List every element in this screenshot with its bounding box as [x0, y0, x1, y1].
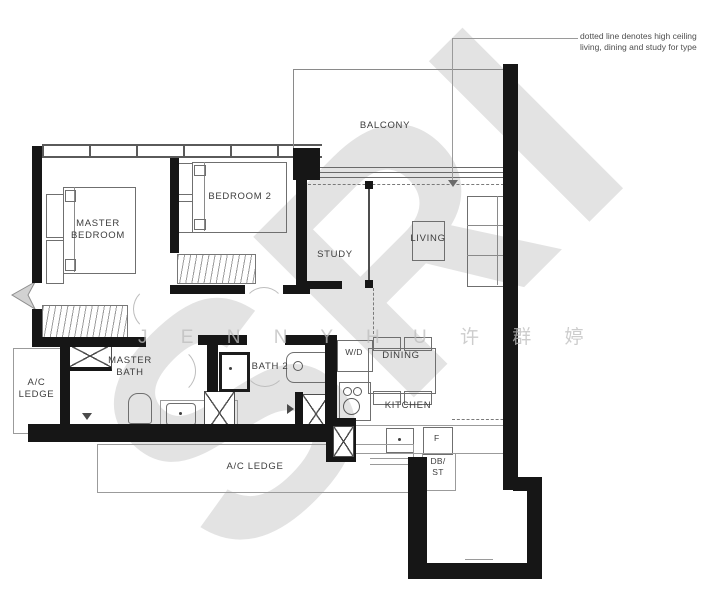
- sofa: [467, 196, 506, 287]
- label-fridge: F: [423, 433, 451, 444]
- sink-drain: [229, 367, 232, 370]
- tub-drain: [293, 361, 303, 371]
- room-label-kitchen: KITCHEN: [382, 400, 434, 412]
- room-label-master-bath: MASTER BATH: [100, 355, 160, 380]
- wall-segment: [325, 335, 337, 430]
- wall-segment: [365, 181, 373, 189]
- wall-segment: [365, 280, 373, 288]
- wardrobe: [177, 254, 256, 284]
- wall-segment: [296, 178, 307, 288]
- room-label-bedroom2: BEDROOM 2: [200, 191, 280, 203]
- sink-drain: [398, 438, 401, 441]
- wall-segment: [32, 146, 42, 283]
- room-label-study: STUDY: [312, 249, 358, 261]
- sofa-cushion-line: [467, 225, 504, 226]
- high-ceiling-dotted-line: [308, 184, 504, 185]
- balcony-sliding-door: [310, 167, 503, 178]
- label-db-st: DB/ ST: [424, 456, 452, 478]
- leader-line-horizontal: [452, 38, 578, 39]
- room-label-master-bedroom: MASTER BEDROOM: [58, 218, 138, 243]
- sofa-cushion-line: [467, 255, 504, 256]
- floor-plan: SRI J E N N Y H U 许 群 婷 dotted line deno…: [0, 0, 705, 600]
- leader-arrow-icon: [448, 180, 458, 187]
- bedroom-window-band: [42, 144, 322, 158]
- wardrobe: [42, 305, 128, 339]
- wall-segment: [28, 424, 354, 442]
- label-ac-ledge-bottom: A/C LEDGE: [200, 461, 310, 473]
- toilet: [128, 393, 152, 424]
- stove-burner: [343, 398, 360, 415]
- brand-watermark: SRI: [0, 0, 705, 600]
- bay-window-chevron-icon: [9, 281, 36, 310]
- sofa-back-line: [497, 196, 498, 285]
- agent-watermark: J E N N Y H U 许 群 婷: [138, 322, 558, 349]
- room-label-balcony: BALCONY: [340, 120, 430, 132]
- wall-segment: [66, 337, 146, 347]
- wall-segment: [293, 148, 320, 180]
- annotation-line2: living, dining and study for type: [580, 42, 697, 53]
- wall-segment: [170, 285, 245, 294]
- annotation-line1: dotted line denotes high ceiling: [580, 31, 697, 42]
- wall-segment: [170, 158, 179, 253]
- ac-unit: [333, 426, 354, 457]
- stove-burner: [343, 387, 352, 396]
- pillow: [65, 190, 76, 202]
- pillow: [194, 219, 206, 230]
- annotation-note: dotted line denotes high ceiling living,…: [580, 31, 697, 53]
- bath2-vanity: [219, 352, 250, 392]
- door-swing-icon: [82, 413, 92, 420]
- sink-drain: [179, 412, 182, 415]
- pillow: [65, 259, 76, 271]
- wall-segment: [60, 340, 70, 430]
- wall-segment: [503, 64, 518, 490]
- room-label-living: LIVING: [402, 233, 454, 245]
- door-swing-icon: [287, 404, 294, 414]
- pillow: [194, 165, 206, 176]
- label-ac-ledge-left: A/C LEDGE: [14, 377, 59, 402]
- wall-segment: [408, 563, 542, 579]
- nightstand: [46, 240, 64, 284]
- stove-burner: [353, 387, 362, 396]
- balcony-edge-top: [293, 69, 504, 70]
- balcony-edge-left: [293, 69, 294, 150]
- leader-line-vertical: [452, 38, 453, 182]
- wall-segment: [306, 281, 342, 289]
- room-label-dining: DINING: [377, 350, 425, 362]
- wall-segment: [295, 392, 303, 430]
- study-partition-thin: [368, 186, 370, 282]
- room-label-bath2: BATH 2: [247, 361, 293, 373]
